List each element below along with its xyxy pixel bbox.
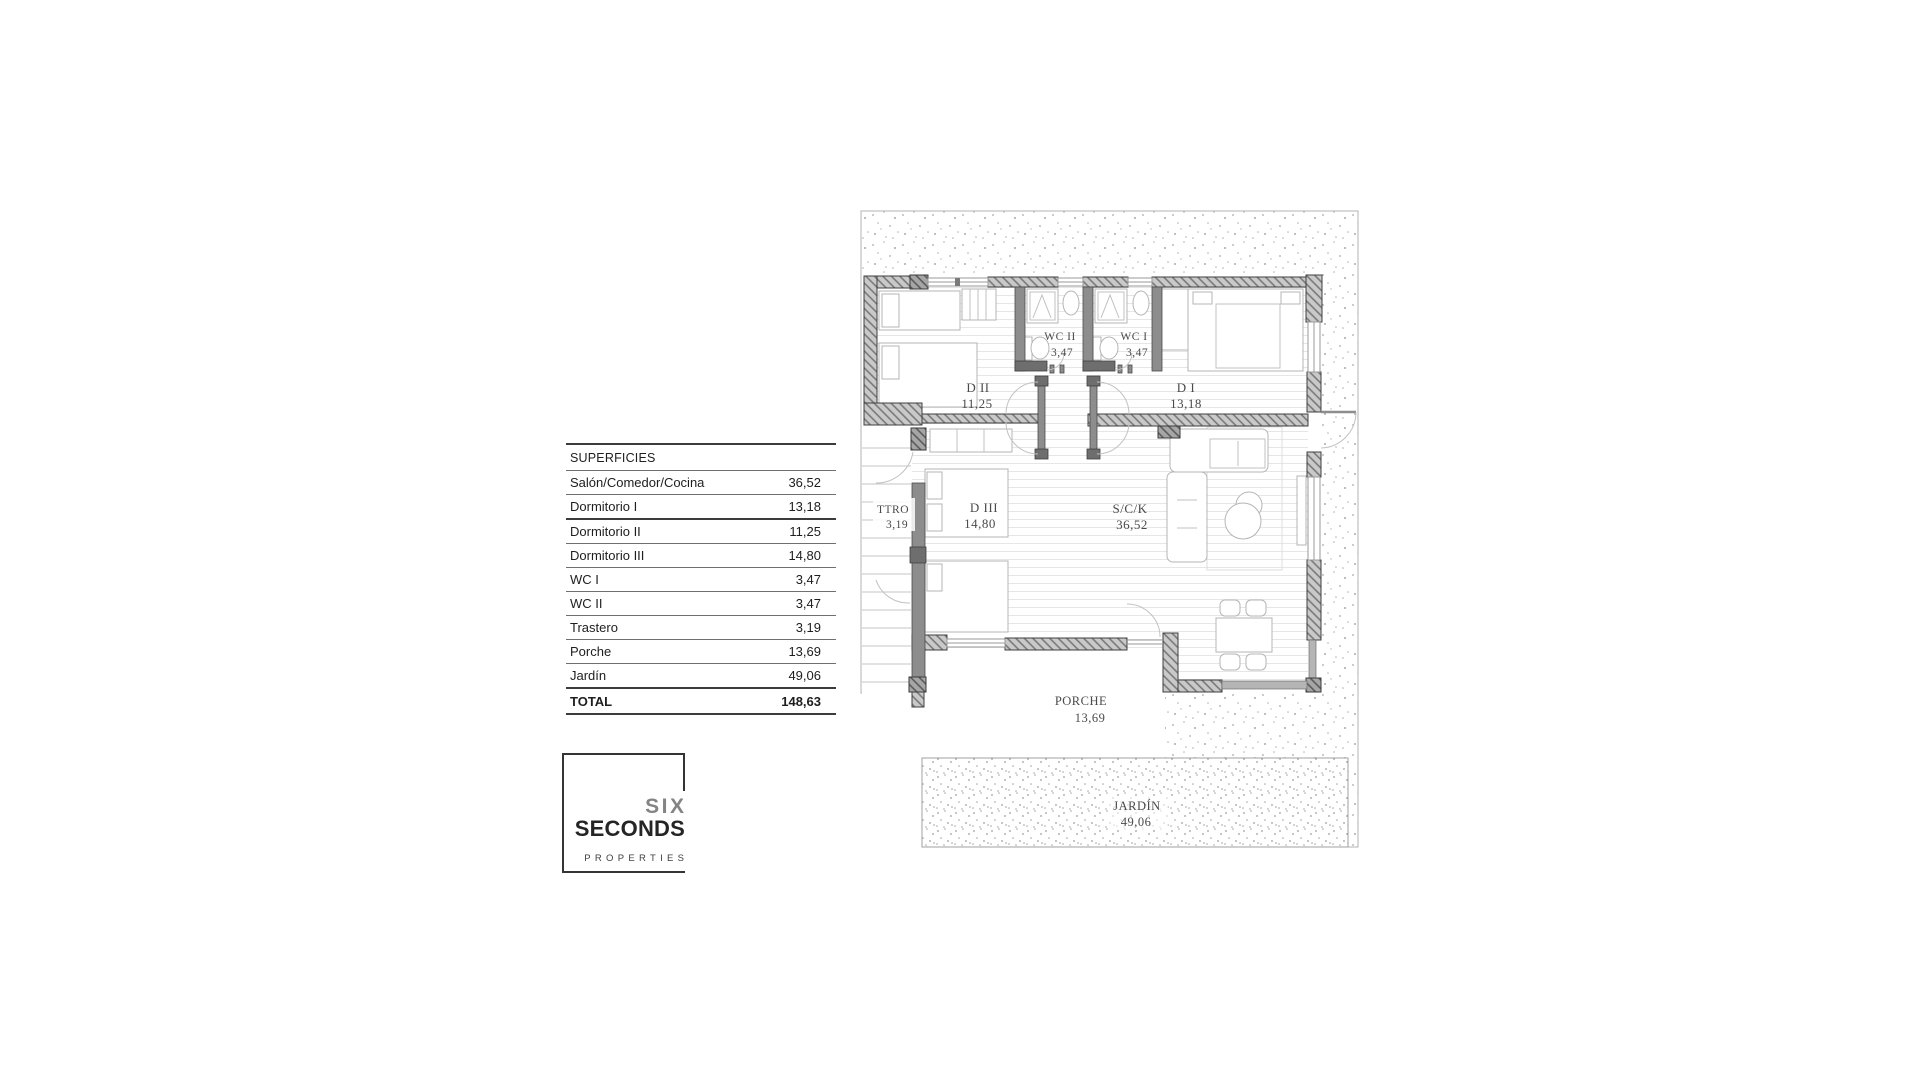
row-value: 11,25 <box>789 524 836 539</box>
room-area-porche: 13,69 <box>1075 711 1106 725</box>
room-label-wc1: WC I <box>1120 331 1147 343</box>
room-label-d3: D III <box>970 500 998 515</box>
row-value: 49,06 <box>788 668 836 683</box>
logo-line1: SIX <box>645 797 686 817</box>
table-row: Trastero 3,19 <box>566 616 836 640</box>
surfaces-header-label: SUPERFICIES <box>566 451 656 465</box>
row-label: Dormitorio III <box>566 548 644 563</box>
logo-frame-right-segment <box>683 755 685 791</box>
row-label: Jardín <box>566 668 606 683</box>
row-label: Trastero <box>566 620 618 635</box>
row-label: Porche <box>566 644 611 659</box>
room-label-sck: S/C/K <box>1112 501 1147 516</box>
row-value: 36,52 <box>788 475 836 490</box>
row-value: 13,69 <box>788 644 836 659</box>
surfaces-table: SUPERFICIES Salón/Comedor/Cocina 36,52 D… <box>566 443 836 715</box>
table-row: Porche 13,69 <box>566 640 836 664</box>
row-label: WC II <box>566 596 603 611</box>
room-label-d2: D II <box>966 380 989 395</box>
six-seconds-logo: SIX SECONDS PROPERTIES <box>562 753 685 873</box>
table-row: Dormitorio III 14,80 <box>566 544 836 568</box>
room-label-d1: D I <box>1177 380 1195 395</box>
room-area-ttro: 3,19 <box>886 519 908 531</box>
table-row: Jardín 49,06 <box>566 664 836 689</box>
room-label-porche: PORCHE <box>1055 694 1107 708</box>
table-row: Salón/Comedor/Cocina 36,52 <box>566 471 836 495</box>
floor-plan: D II 11,25 WC II 3,47 WC I 3,47 D I 13,1… <box>855 205 1365 855</box>
row-label: Dormitorio II <box>566 524 641 539</box>
logo-line2: SECONDS <box>575 817 685 840</box>
row-label: WC I <box>566 572 599 587</box>
room-area-wc2: 3,47 <box>1051 347 1073 359</box>
total-label: TOTAL <box>566 694 612 709</box>
row-label: Salón/Comedor/Cocina <box>566 475 704 490</box>
table-row: Dormitorio II 11,25 <box>566 520 836 544</box>
row-value: 14,80 <box>788 548 836 563</box>
table-row: WC II 3,47 <box>566 592 836 616</box>
room-area-d3: 14,80 <box>964 516 996 531</box>
logo-line3: PROPERTIES <box>584 853 688 864</box>
table-total-row: TOTAL 148,63 <box>566 689 836 713</box>
page: SUPERFICIES Salón/Comedor/Cocina 36,52 D… <box>0 0 1920 1080</box>
trastero-steps <box>862 428 912 696</box>
table-row: WC I 3,47 <box>566 568 836 592</box>
room-area-d1: 13,18 <box>1170 396 1202 411</box>
total-value: 148,63 <box>781 694 836 709</box>
row-value: 3,47 <box>796 572 836 587</box>
table-row: Dormitorio I 13,18 <box>566 495 836 520</box>
room-area-sck: 36,52 <box>1116 517 1148 532</box>
room-area-jardin: 49,06 <box>1121 815 1152 829</box>
room-area-wc1: 3,47 <box>1126 347 1148 359</box>
room-label-wc2: WC II <box>1044 331 1076 343</box>
row-value: 3,47 <box>796 596 836 611</box>
row-label: Dormitorio I <box>566 499 637 514</box>
room-area-d2: 11,25 <box>961 396 992 411</box>
room-label-ttro: TTRO <box>877 504 909 516</box>
room-label-jardin: JARDÍN <box>1113 799 1160 813</box>
row-value: 3,19 <box>796 620 836 635</box>
row-value: 13,18 <box>788 499 836 514</box>
surfaces-table-header: SUPERFICIES <box>566 445 836 471</box>
